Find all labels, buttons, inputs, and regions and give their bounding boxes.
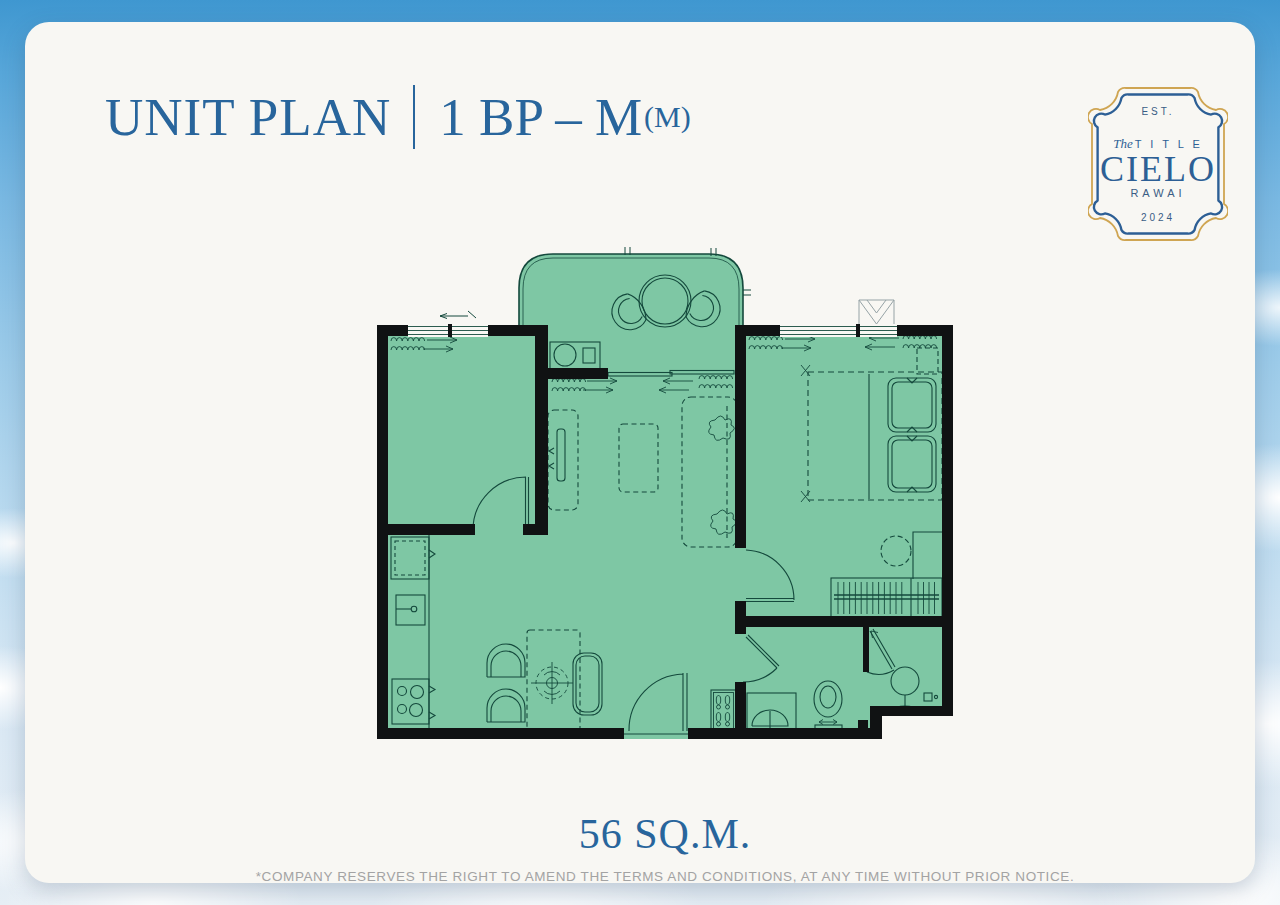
page: { "header": { "title": "UNIT PLAN", "uni… xyxy=(0,0,1280,905)
logo-text: EST. TheT I T L E CIELO RAWAI 2024 xyxy=(1088,84,1228,244)
page-title: UNIT PLAN xyxy=(105,87,391,147)
area-label: 56 SQ.M. xyxy=(25,810,1280,858)
logo-location: RAWAI xyxy=(1088,187,1228,199)
unit-code-suffix: (M) xyxy=(644,100,691,134)
unit-code: 1 BP – M xyxy=(439,87,642,147)
logo-name: CIELO xyxy=(1088,148,1228,190)
logo-est: EST. xyxy=(1088,106,1228,117)
title-bar: UNIT PLAN 1 BP – M (M) xyxy=(105,84,691,150)
brand-logo: EST. TheT I T L E CIELO RAWAI 2024 xyxy=(1088,84,1228,244)
floor-plan xyxy=(365,246,965,746)
title-divider xyxy=(413,85,415,149)
disclaimer-text: *COMPANY RESERVES THE RIGHT TO AMEND THE… xyxy=(25,869,1280,884)
ac-ledge xyxy=(882,716,953,739)
logo-year: 2024 xyxy=(1088,212,1228,223)
brochure-card: UNIT PLAN 1 BP – M (M) EST. TheT I T L E… xyxy=(25,22,1255,883)
